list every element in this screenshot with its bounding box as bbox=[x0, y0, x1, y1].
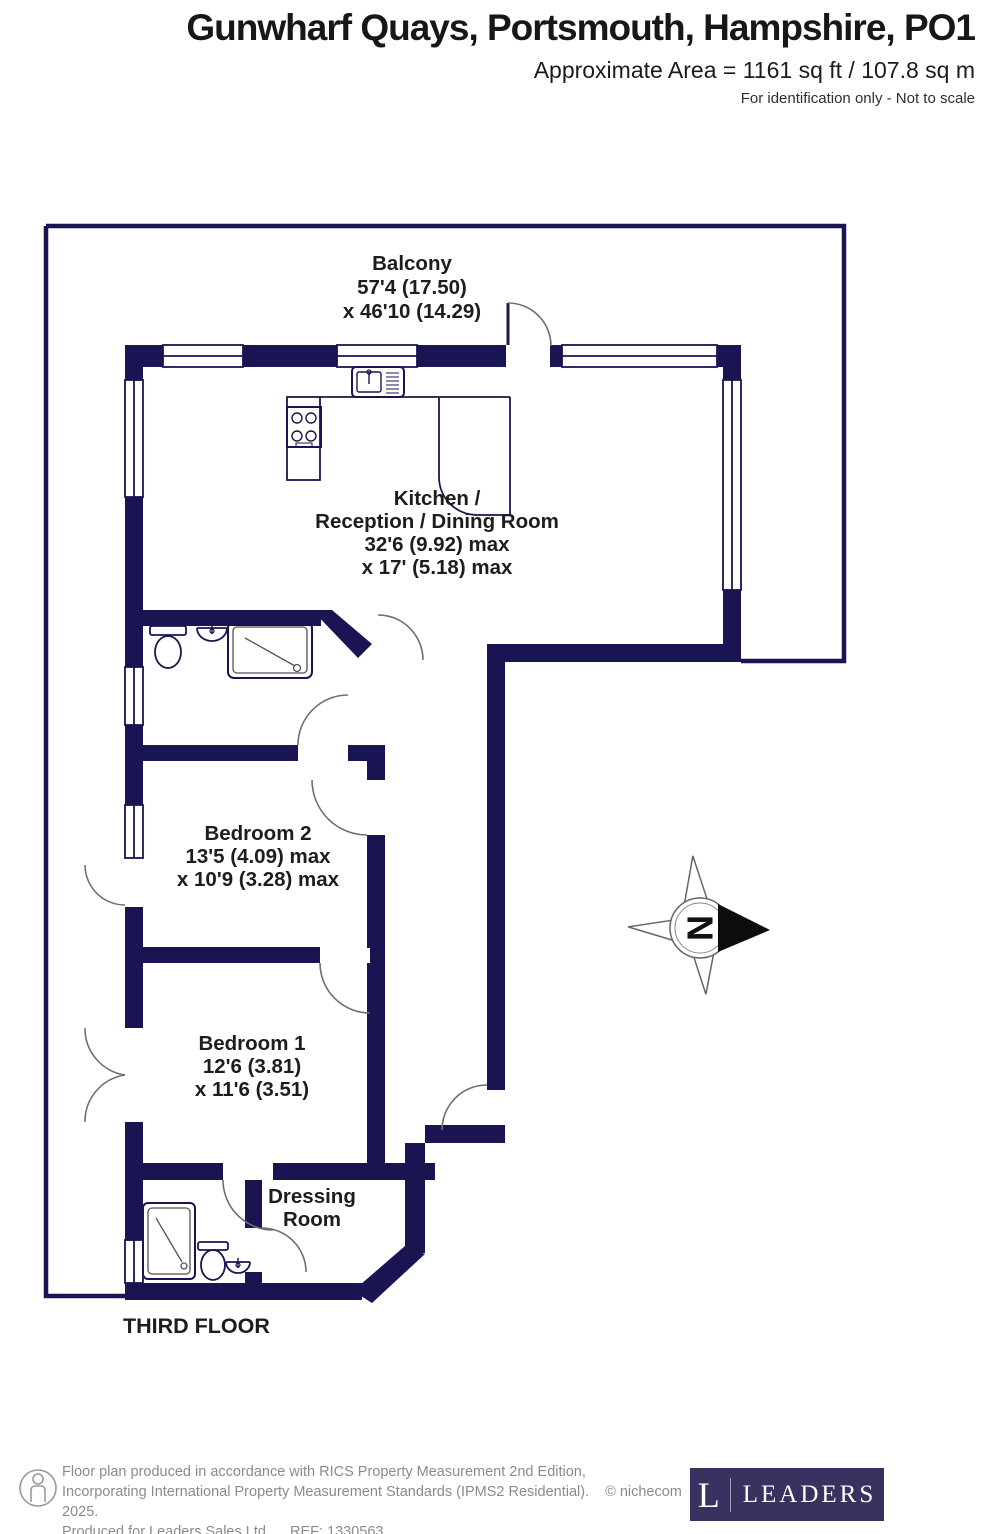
floor-plan-drawing: N Balcony 57'4 (17.50) x 46'10 (14.29) K… bbox=[0, 0, 984, 1534]
compass-north-letter: N bbox=[680, 915, 721, 941]
leaders-logo: L LEADERS bbox=[690, 1468, 884, 1521]
bedroom2-dim-1: 13'5 (4.09) max bbox=[185, 845, 331, 868]
dressing-room-label-1: Dressing bbox=[268, 1185, 356, 1208]
kitchen-label-2: Reception / Dining Room bbox=[315, 510, 559, 533]
footer-text: Floor plan produced in accordance with R… bbox=[62, 1462, 692, 1534]
balcony-label: Balcony bbox=[372, 252, 452, 275]
kitchen-dim-2: x 17' (5.18) max bbox=[362, 556, 513, 579]
north-arrow bbox=[718, 904, 770, 952]
kitchen-dim-1: 32'6 (9.92) max bbox=[364, 533, 510, 556]
bedroom2-label: Bedroom 2 bbox=[204, 822, 311, 845]
footer-line-1: Floor plan produced in accordance with R… bbox=[62, 1464, 586, 1480]
balcony-dim-2: x 46'10 (14.29) bbox=[343, 300, 481, 323]
footer-line-3: Produced for Leaders Sales Ltd. bbox=[62, 1524, 270, 1534]
logo-divider bbox=[730, 1478, 731, 1512]
ensuite-fixtures bbox=[143, 1203, 250, 1280]
footer-line-2: Incorporating International Property Mea… bbox=[62, 1484, 589, 1500]
bedroom2-dim-2: x 10'9 (3.28) max bbox=[177, 868, 340, 891]
person-icon bbox=[18, 1465, 58, 1511]
floorplan-page: Gunwharf Quays, Portsmouth, Hampshire, P… bbox=[0, 0, 984, 1534]
dressing-room-label-2: Room bbox=[283, 1208, 341, 1231]
floor-label: THIRD FLOOR bbox=[123, 1314, 270, 1338]
reference-number: REF: 1330563 bbox=[290, 1524, 384, 1534]
balcony-dim-1: 57'4 (17.50) bbox=[357, 276, 467, 299]
logo-name: LEADERS bbox=[743, 1485, 877, 1505]
bathroom-fixtures bbox=[150, 622, 312, 678]
bedroom1-dim-1: 12'6 (3.81) bbox=[203, 1055, 301, 1078]
bedroom1-dim-2: x 11'6 (3.51) bbox=[195, 1078, 309, 1101]
balcony-door-gap bbox=[506, 345, 550, 367]
footer: Floor plan produced in accordance with R… bbox=[18, 1462, 984, 1532]
logo-letter: L bbox=[698, 1477, 720, 1513]
bedroom1-label: Bedroom 1 bbox=[198, 1032, 305, 1055]
compass-rose: N bbox=[617, 855, 770, 1007]
kitchen-label-1: Kitchen / bbox=[394, 487, 481, 510]
